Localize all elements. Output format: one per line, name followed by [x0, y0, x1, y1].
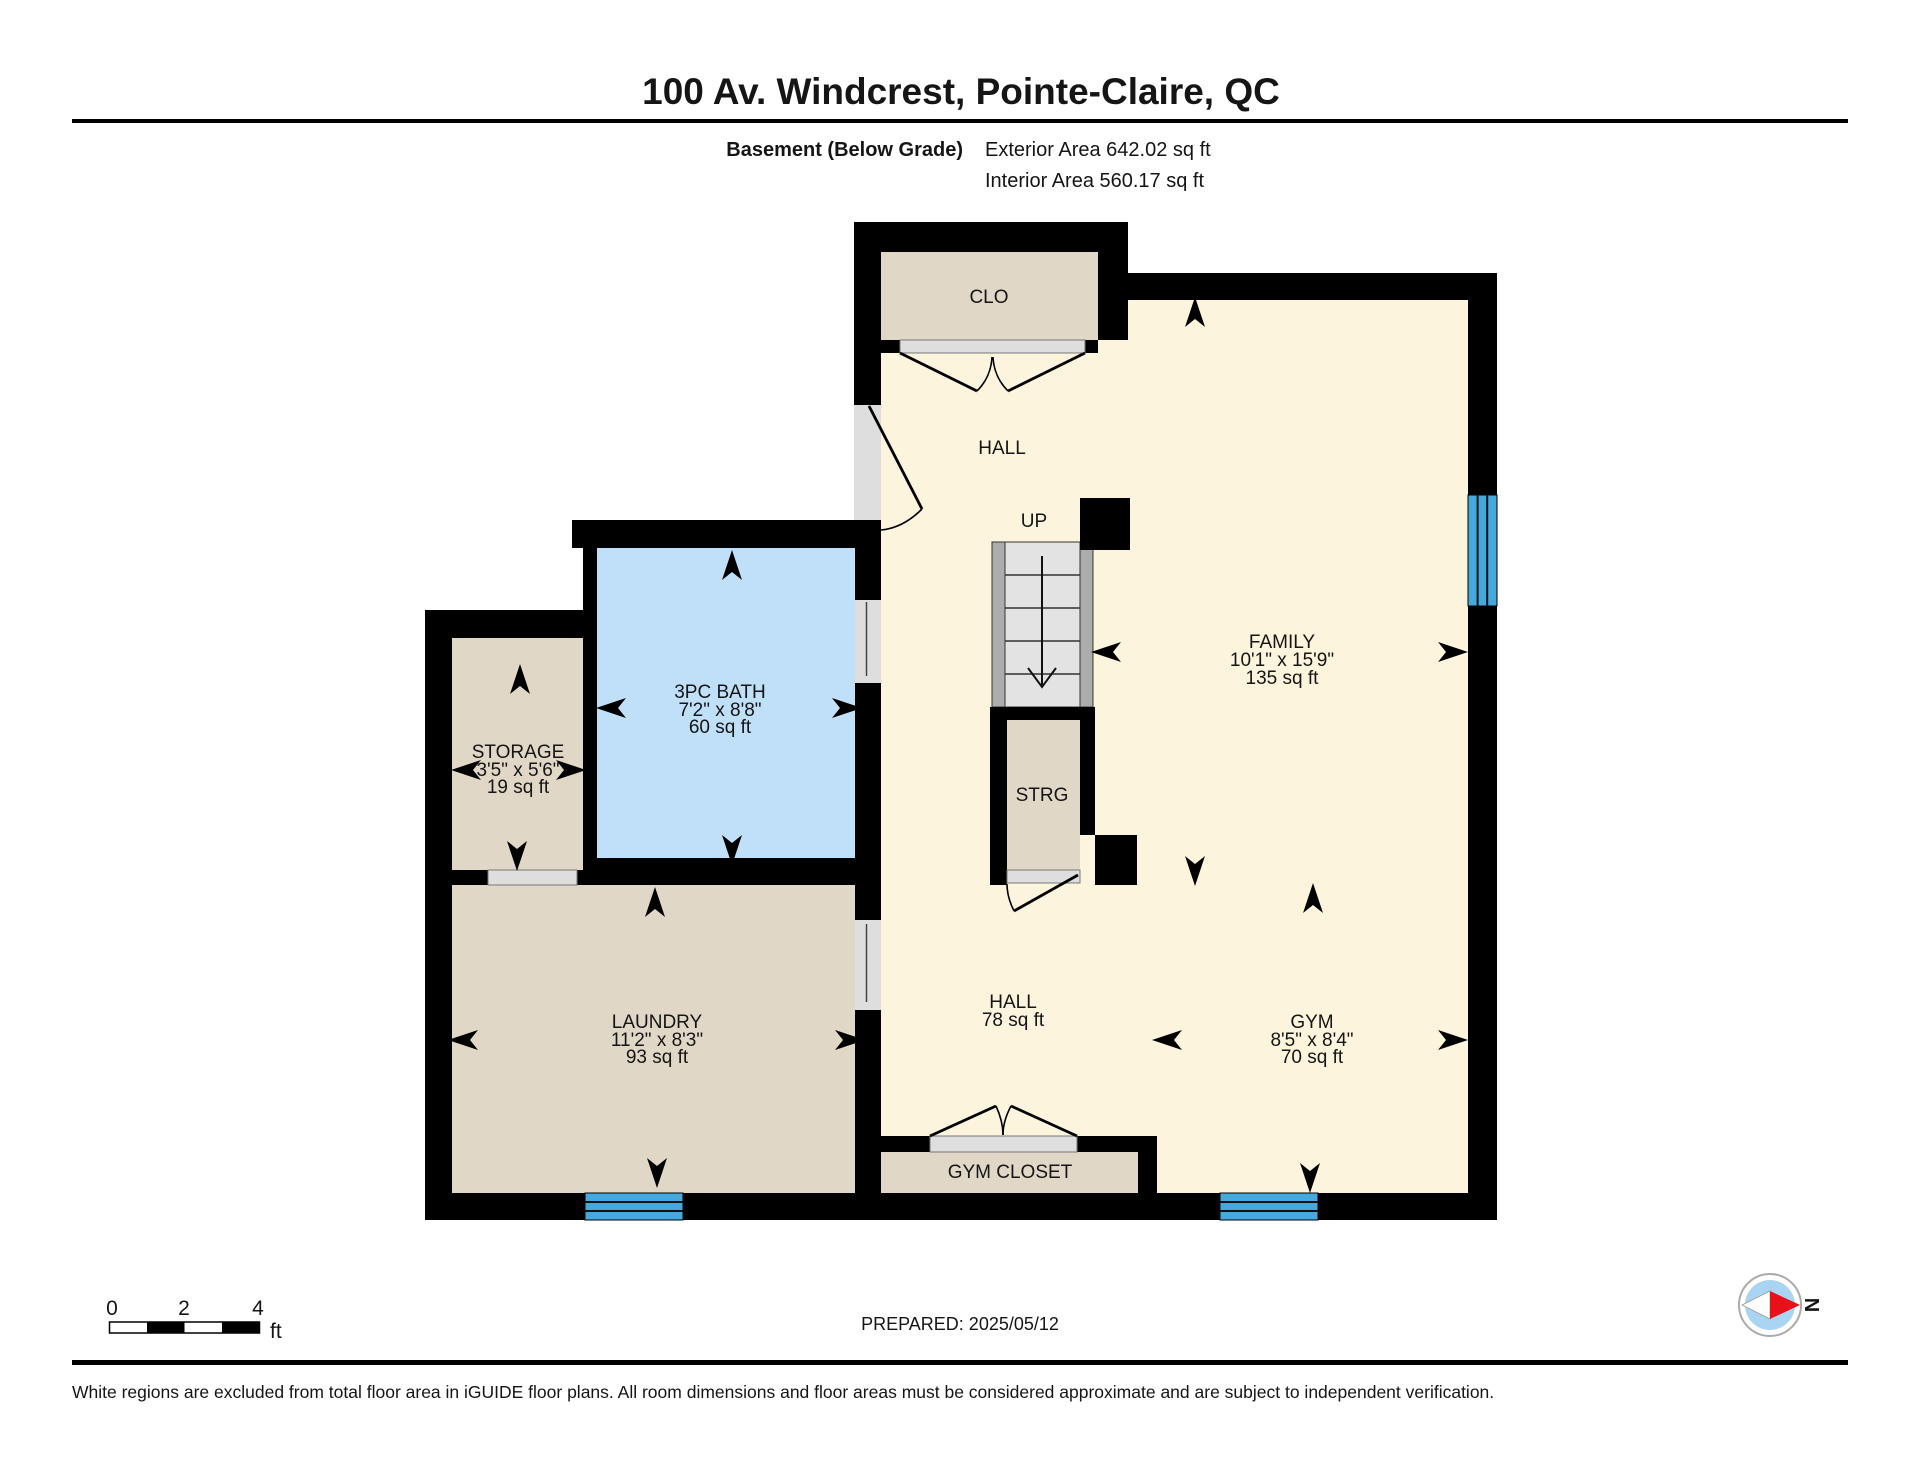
- room-area-family: 135 sq ft: [1246, 668, 1320, 689]
- scale-bar: 0 2 4 ft: [106, 1297, 282, 1343]
- laundry-sliding-door: [855, 920, 881, 1010]
- scale-tick-4: 4: [252, 1297, 264, 1320]
- room-area-bath: 60 sq ft: [689, 717, 752, 738]
- scale-tick-0: 0: [106, 1297, 118, 1320]
- room-label-strg: STRG: [1016, 785, 1069, 806]
- compass-icon: N: [1739, 1274, 1822, 1336]
- room-label-clo: CLO: [969, 287, 1008, 308]
- header: 100 Av. Windcrest, Pointe-Claire, QC Bas…: [72, 71, 1848, 192]
- gym-closet-door-threshold: [930, 1136, 1077, 1152]
- exterior-area: Exterior Area 642.02 sq ft: [985, 139, 1211, 161]
- hall-family-gym-floor: [881, 300, 1468, 1193]
- family-window-icon: [1468, 495, 1497, 606]
- scale-unit: ft: [270, 1320, 282, 1343]
- scale-tick-2: 2: [178, 1297, 190, 1320]
- gym-window-icon: [1220, 1193, 1318, 1220]
- floor-label: Basement (Below Grade): [726, 139, 963, 161]
- staircase: [992, 542, 1093, 707]
- room-area-laundry: 93 sq ft: [626, 1047, 689, 1068]
- clo-door-threshold: [900, 340, 1085, 353]
- compass-north-label: N: [1800, 1298, 1822, 1312]
- scale-bar-seg4: [222, 1322, 260, 1333]
- room-label-hall-upper: HALL: [978, 438, 1026, 459]
- scale-bar-seg2: [147, 1322, 185, 1333]
- room-label-gym-closet: GYM CLOSET: [948, 1162, 1073, 1183]
- page-title: 100 Av. Windcrest, Pointe-Claire, QC: [642, 71, 1280, 112]
- floorplan-page: 100 Av. Windcrest, Pointe-Claire, QC Bas…: [0, 0, 1920, 1483]
- room-area-gym: 70 sq ft: [1281, 1047, 1344, 1068]
- disclaimer-text: White regions are excluded from total fl…: [72, 1382, 1494, 1402]
- header-divider: [72, 119, 1848, 123]
- prepared-date: PREPARED: 2025/05/12: [861, 1314, 1059, 1334]
- floor-plan: CLO HALL UP FAMILY 10'1" x 15'9" 135 sq …: [425, 222, 1497, 1220]
- floorplan-svg: 100 Av. Windcrest, Pointe-Claire, QC Bas…: [0, 0, 1920, 1483]
- storage-opening: [488, 870, 577, 885]
- footer: White regions are excluded from total fl…: [72, 1360, 1848, 1402]
- interior-area: Interior Area 560.17 sq ft: [985, 170, 1204, 192]
- laundry-window-icon: [585, 1193, 683, 1220]
- room-area-storage: 19 sq ft: [487, 777, 550, 798]
- room-area-hall-lower: 78 sq ft: [982, 1010, 1045, 1031]
- footer-divider: [72, 1360, 1848, 1365]
- room-label-up: UP: [1021, 511, 1047, 532]
- bath-pocket-door: [855, 600, 881, 683]
